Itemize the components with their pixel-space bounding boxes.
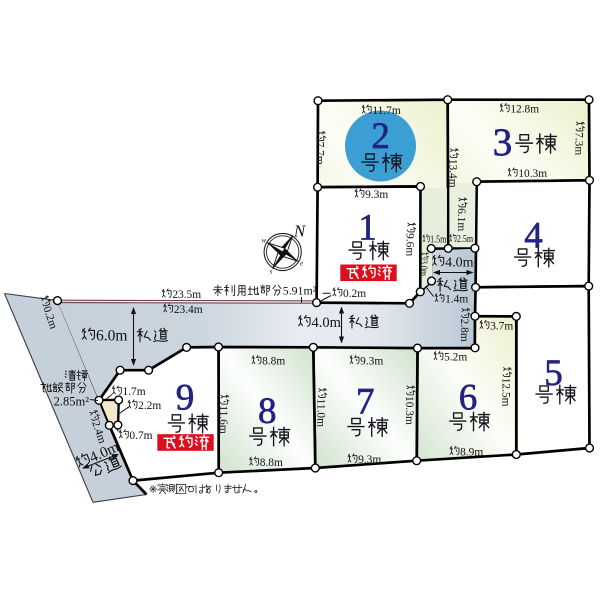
svg-text:1.7m: 1.7m	[122, 386, 145, 398]
svg-text:e: e	[300, 259, 303, 267]
svg-text:2: 2	[371, 116, 390, 157]
svg-text:6.0m: 6.0m	[96, 328, 127, 345]
svg-text:10.3m: 10.3m	[403, 396, 415, 425]
svg-text:1.5m: 1.5m	[430, 234, 446, 245]
svg-text:6.1m: 6.1m	[455, 208, 467, 231]
svg-text:11.0m: 11.0m	[315, 399, 327, 428]
svg-text:7.7m: 7.7m	[313, 142, 325, 165]
svg-text:2.85m²: 2.85m²	[54, 395, 90, 409]
svg-text:3.7m: 3.7m	[490, 320, 513, 332]
svg-text:13.4m: 13.4m	[446, 159, 458, 188]
svg-text:12.5m: 12.5m	[499, 378, 511, 407]
svg-text:5.2m: 5.2m	[444, 352, 467, 364]
svg-text:2.8m: 2.8m	[458, 319, 470, 342]
svg-text:9.3m: 9.3m	[365, 189, 388, 201]
svg-text:0.2m: 0.2m	[343, 288, 366, 300]
svg-text:0.7m: 0.7m	[129, 430, 152, 442]
svg-text:s: s	[270, 268, 273, 276]
svg-text:10.3m: 10.3m	[518, 168, 547, 180]
svg-text:7.3m: 7.3m	[572, 132, 584, 155]
svg-text:23.5m: 23.5m	[172, 289, 201, 301]
svg-text:23.4m: 23.4m	[174, 304, 203, 316]
svg-text:2.5m: 2.5m	[457, 233, 473, 244]
svg-text:w: w	[261, 237, 266, 245]
svg-text:11.6m: 11.6m	[217, 405, 229, 434]
svg-text:8.8m: 8.8m	[260, 457, 283, 469]
svg-text:9.6m: 9.6m	[404, 233, 416, 256]
svg-text:5.91m²: 5.91m²	[283, 284, 317, 298]
svg-text:8: 8	[258, 391, 277, 432]
svg-text:4.0m: 4.0m	[312, 315, 342, 331]
svg-text:8.8m: 8.8m	[262, 356, 285, 368]
svg-text:8.9m: 8.9m	[460, 446, 483, 458]
svg-text:2.2m: 2.2m	[138, 400, 161, 412]
svg-text:1.4m: 1.4m	[445, 294, 468, 306]
svg-text:3: 3	[493, 121, 513, 164]
svg-text:4.0m: 4.0m	[445, 255, 474, 270]
svg-text:12.8m: 12.8m	[510, 104, 539, 116]
svg-text:3.0m: 3.0m	[418, 260, 429, 276]
svg-text:N: N	[293, 221, 307, 240]
svg-text:9.3m: 9.3m	[358, 454, 381, 466]
svg-text:9.3m: 9.3m	[360, 356, 383, 368]
svg-text:11.7m: 11.7m	[372, 105, 401, 117]
svg-text:7: 7	[356, 381, 375, 422]
svg-text:9: 9	[176, 378, 195, 419]
